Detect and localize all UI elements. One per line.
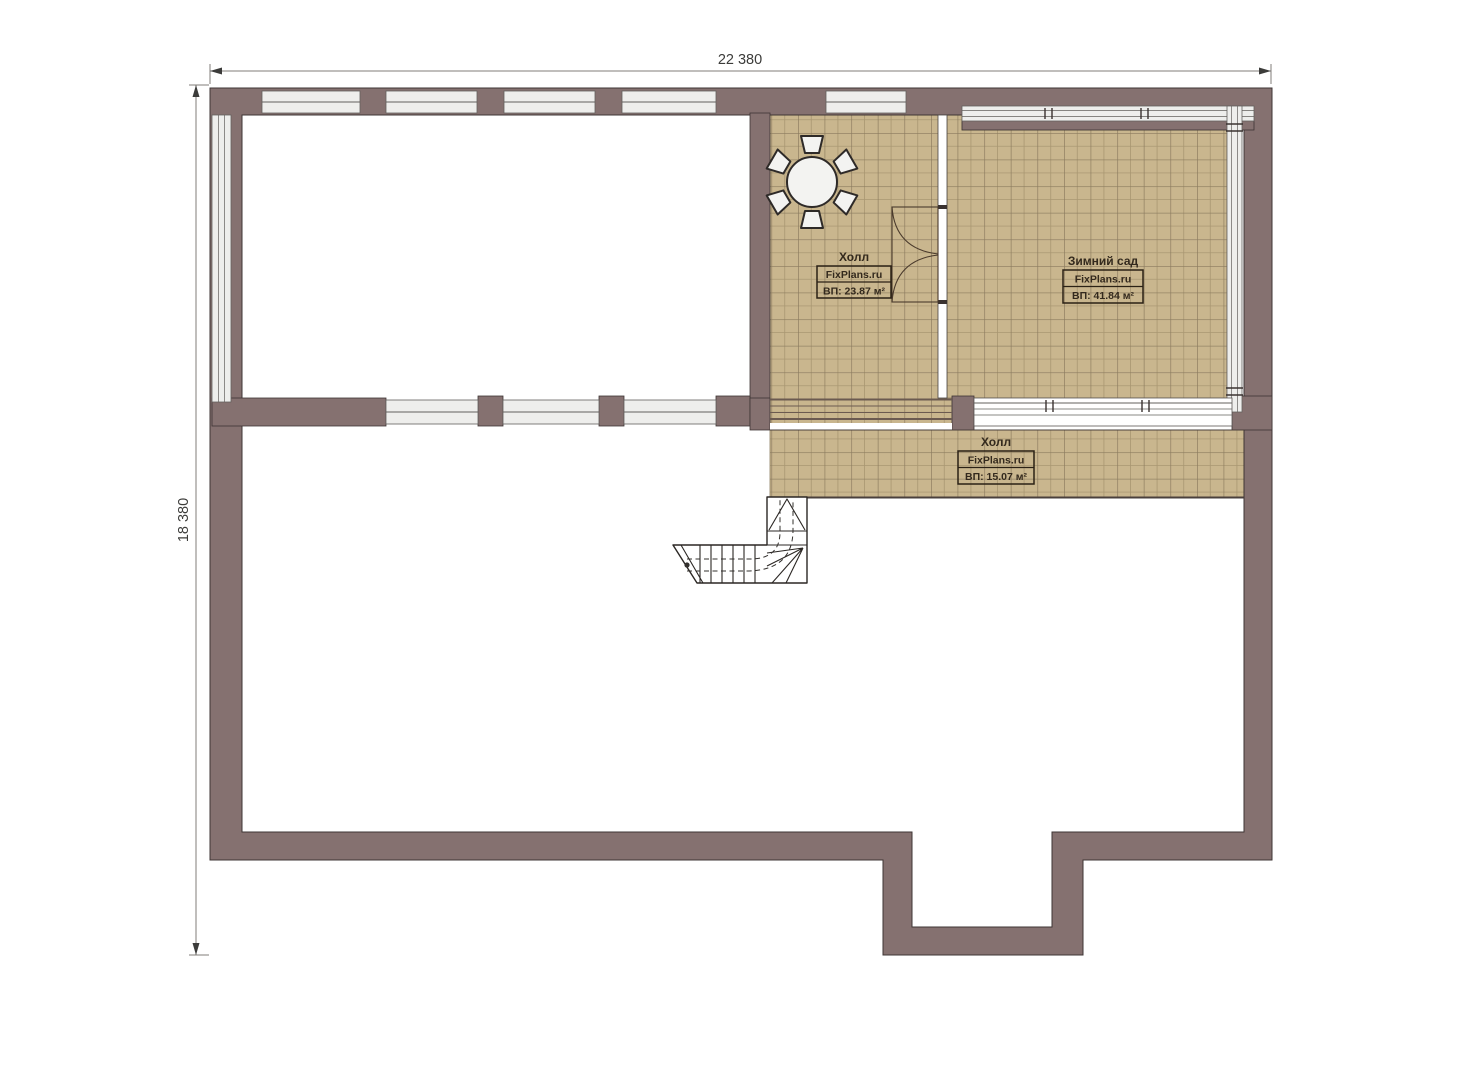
winter-garden-sill xyxy=(962,120,1254,130)
staircase-symbol xyxy=(673,497,807,583)
room-brand: FixPlans.ru xyxy=(826,269,883,281)
dimension-left: 18 380 xyxy=(176,85,209,955)
room-name: Холл xyxy=(839,250,869,264)
wall-middle-solid xyxy=(212,398,386,426)
winter-garden-glazing-top xyxy=(962,106,1254,121)
table-top xyxy=(787,157,837,207)
wall-pier xyxy=(599,396,624,426)
wall-pier xyxy=(478,396,503,426)
room-brand: FixPlans.ru xyxy=(968,455,1025,467)
room-name: Зимний сад xyxy=(1068,254,1139,268)
room-label-winter-garden: Зимний сад FixPlans.ru ВП: 41.84 м² xyxy=(1063,254,1143,303)
floor-plan-page: Холл FixPlans.ru ВП: 23.87 м² Зимний сад… xyxy=(0,0,1473,1080)
floor-plan-drawing: Холл FixPlans.ru ВП: 23.87 м² Зимний сад… xyxy=(0,0,1473,1080)
middle-wall-windows xyxy=(386,400,716,424)
dimension-top: 22 380 xyxy=(210,52,1271,84)
room-area: ВП: 41.84 м² xyxy=(1072,290,1135,302)
room-area: ВП: 23.87 м² xyxy=(823,286,886,298)
wall-hall-left xyxy=(750,113,770,400)
room-brand: FixPlans.ru xyxy=(1075,274,1132,286)
wall-pier xyxy=(750,398,770,430)
opening-band xyxy=(974,398,1232,426)
room-name: Холл xyxy=(981,435,1011,449)
wall-pier xyxy=(952,396,974,430)
room-area: ВП: 15.07 м² xyxy=(965,471,1028,483)
glass-partition xyxy=(938,115,947,398)
walkline-start-dot xyxy=(684,562,689,567)
winter-garden-glazing-right xyxy=(1226,106,1243,412)
dimension-top-value: 22 380 xyxy=(718,52,762,68)
dimension-left-value: 18 380 xyxy=(176,498,192,542)
left-wall-glazing xyxy=(212,115,231,402)
wall-pier xyxy=(716,396,750,426)
